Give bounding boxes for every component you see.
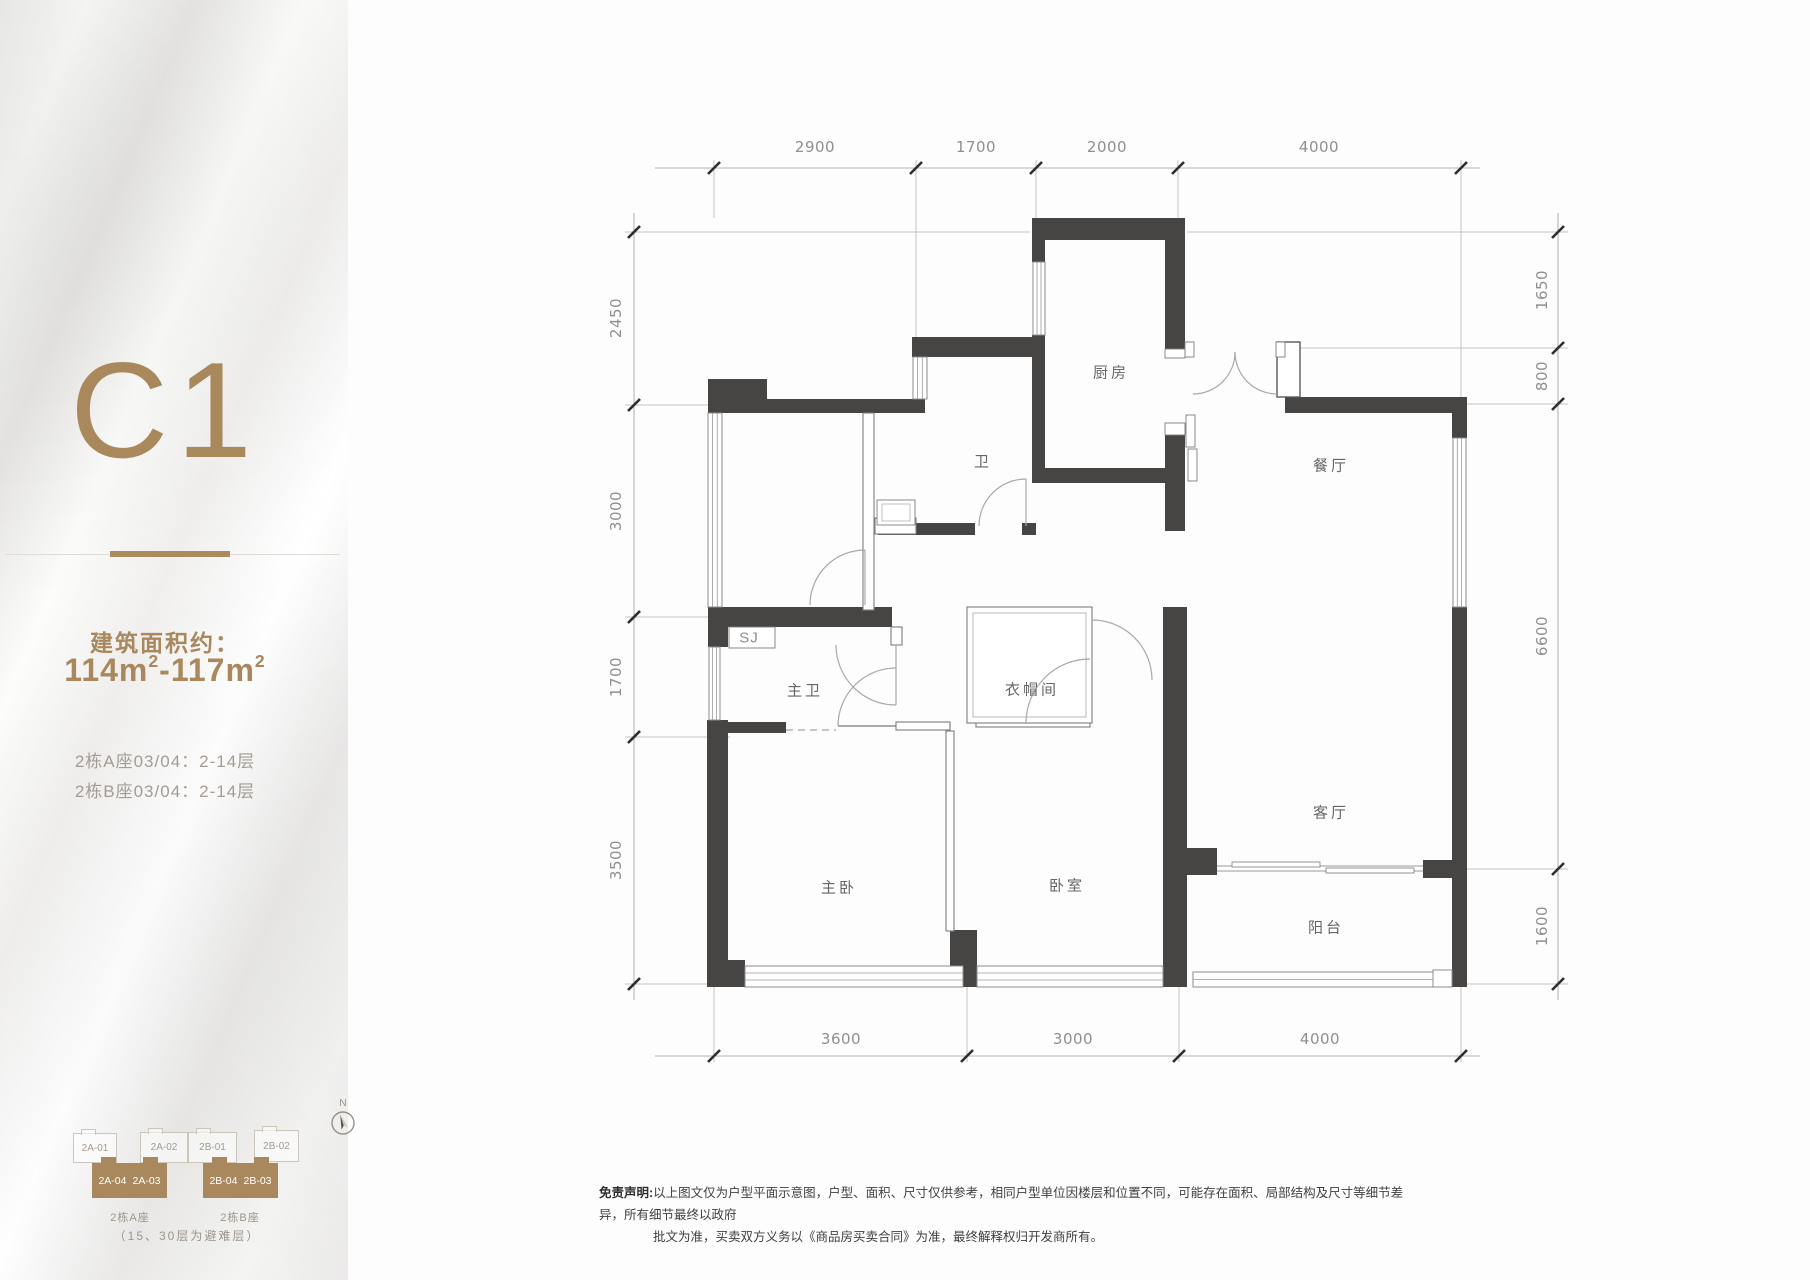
dim-top-3: 2000 <box>1087 138 1127 156</box>
room-label-master-bed: 主卧 <box>821 877 857 898</box>
disclaimer-line1: 免责声明:以上图文仅为户型平面示意图，户型、面积、尺寸仅供参考，相同户型单位因楼… <box>599 1182 1409 1226</box>
room-label-master-bath: 主卫 <box>787 680 823 701</box>
disclaimer-title: 免责声明: <box>599 1186 653 1200</box>
dim-left-2: 3000 <box>607 491 625 531</box>
dim-left-3: 1700 <box>607 657 625 697</box>
dim-top-4: 4000 <box>1299 138 1339 156</box>
floorplan-page: C1 建筑面积约： 114m2-117m2 2栋A座03/04：2-14层 2栋… <box>0 0 1810 1280</box>
room-label-kitchen: 厨房 <box>1093 362 1129 383</box>
room-label-shaft: SJ <box>739 630 759 647</box>
sliding-door <box>1217 862 1423 873</box>
dim-top-1: 2900 <box>795 138 835 156</box>
disclaimer-text: 免责声明:以上图文仅为户型平面示意图，户型、面积、尺寸仅供参考，相同户型单位因楼… <box>599 1182 1409 1248</box>
dim-bottom-2: 3000 <box>1053 1030 1093 1048</box>
dim-left-4: 3500 <box>607 840 625 880</box>
disclaimer-line2: 批文为准，买卖双方义务以《商品房买卖合同》为准，最终解释权归开发商所有。 <box>599 1226 1409 1248</box>
dim-right-4: 1600 <box>1533 906 1551 946</box>
dim-bottom-1: 3600 <box>821 1030 861 1048</box>
room-label-bedroom: 卧室 <box>1049 875 1085 896</box>
room-label-living: 客厅 <box>1313 802 1349 823</box>
dim-bottom-3: 4000 <box>1300 1030 1340 1048</box>
room-label-cloakroom: 衣帽间 <box>1005 679 1059 700</box>
dim-left-1: 2450 <box>607 298 625 338</box>
disclaimer-body1: 以上图文仅为户型平面示意图，户型、面积、尺寸仅供参考，相同户型单位因楼层和位置不… <box>599 1186 1403 1222</box>
dim-right-3: 6600 <box>1533 616 1551 656</box>
dim-right-2: 800 <box>1533 361 1551 391</box>
dim-top-2: 1700 <box>956 138 996 156</box>
room-label-balcony: 阳台 <box>1308 917 1344 938</box>
dim-right-1: 1650 <box>1533 270 1551 310</box>
room-label-bath: 卫 <box>974 451 992 472</box>
thin-partitions <box>729 342 1300 931</box>
room-label-dining: 餐厅 <box>1313 455 1349 476</box>
